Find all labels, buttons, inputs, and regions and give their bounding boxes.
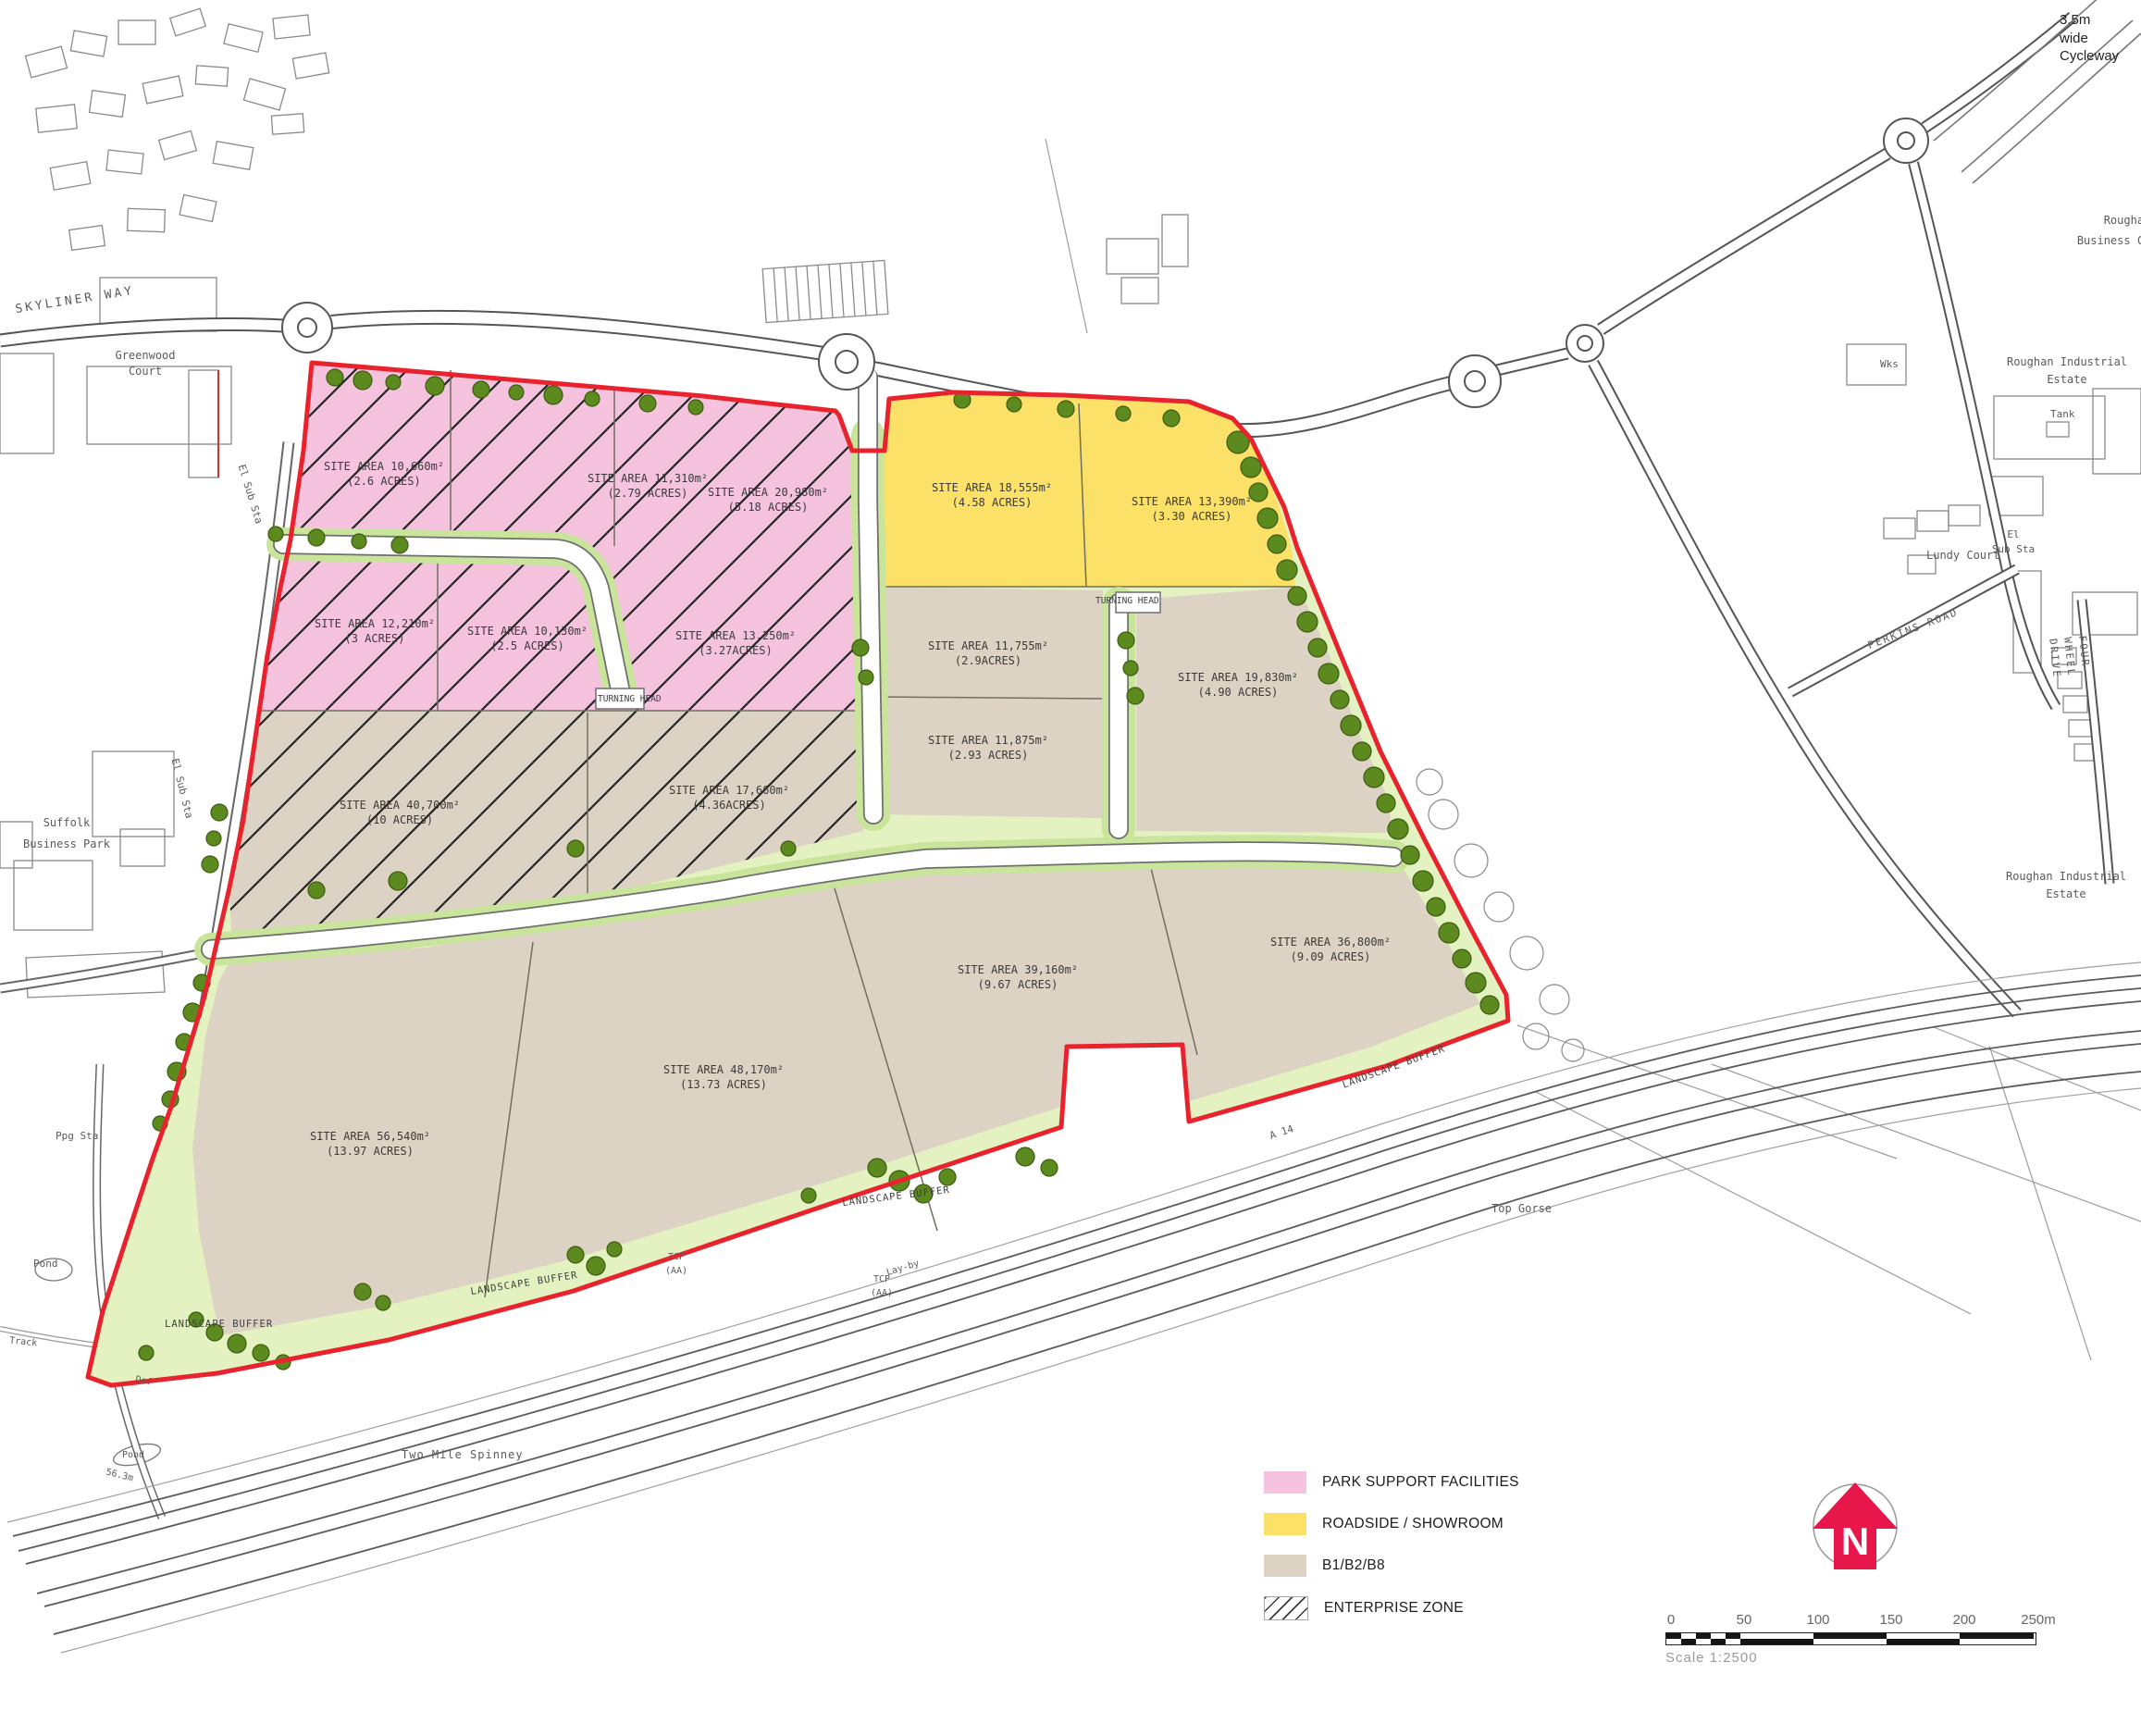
legend: PARK SUPPORT FACILITIES ROADSIDE / SHOWR… (1264, 1471, 1519, 1620)
road-label-track: Track (8, 1334, 37, 1351)
parcel-label-9: SITE AREA 11,755m²(2.9ACRES) (928, 639, 1048, 668)
legend-label: PARK SUPPORT FACILITIES (1322, 1474, 1519, 1491)
parcel-label-3: SITE AREA 20,980m²(5.18 ACRES) (708, 485, 828, 515)
place-label-pond-b: Pond (122, 1449, 144, 1463)
north-arrow: N (1813, 1482, 1898, 1569)
parcel-label-6: SITE AREA 13,250m²(3.27ACRES) (675, 628, 796, 658)
parcel-area: SITE AREA 11,310m² (588, 471, 708, 486)
parcel-area: SITE AREA 10,660m² (324, 459, 444, 474)
north-arrow-label: N (1841, 1519, 1869, 1563)
road-label-tcp-aa-a: TCP (AA) (653, 1251, 699, 1278)
legend-swatch-beige (1264, 1555, 1306, 1577)
place-label-tank: Tank (2050, 407, 2075, 422)
legend-label: ROADSIDE / SHOWROOM (1322, 1516, 1504, 1532)
place-label-greenwood-court: Greenwood Court (94, 348, 196, 380)
parcel-area: SITE AREA 17,660m² (669, 783, 789, 798)
parcel-area: SITE AREA 40,700m² (340, 798, 460, 812)
scale-tick: 0 (1667, 1612, 1675, 1628)
annotation-turning-head-b: TURNING HEAD (598, 693, 662, 706)
parcel-area: SITE AREA 20,980m² (708, 485, 828, 500)
legend-item-roadside-showroom: ROADSIDE / SHOWROOM (1264, 1513, 1519, 1535)
parcel-label-16: SITE AREA 48,170m²(13.73 ACRES) (663, 1062, 784, 1092)
annotation-cycleway: 3.5m wide Cycleway (2060, 11, 2119, 66)
legend-item-enterprise-zone: ENTERPRISE ZONE (1264, 1596, 1519, 1620)
parcel-acres: (9.09 ACRES) (1270, 949, 1391, 964)
scale-tick: 250m (2021, 1612, 2056, 1628)
parcel-acres: (10 ACRES) (340, 812, 460, 827)
parcel-acres: (4.36ACRES) (669, 798, 789, 812)
place-label-el-sub-sta-c: El Sub Sta (1976, 527, 2050, 557)
parcel-area: SITE AREA 11,875m² (928, 733, 1048, 748)
parcel-area: SITE AREA 36,800m² (1270, 935, 1391, 949)
road-label-four-wheel-drive: FOUR WHEEL DRIVE (2045, 635, 2094, 691)
scale-tick: 200 (1952, 1612, 1975, 1628)
map-canvas: N (0, 0, 2141, 1736)
parcel-acres: (9.67 ACRES) (958, 977, 1078, 992)
place-label-roughan-industrial-south: Roughan Industrial Estate (1987, 868, 2141, 903)
parcel-area: SITE AREA 56,540m² (310, 1129, 430, 1144)
parcel-label-15: SITE AREA 36,800m²(9.09 ACRES) (1270, 935, 1391, 964)
parcel-label-13: SITE AREA 17,660m²(4.36ACRES) (669, 783, 789, 812)
place-label-two-mile-spinney: Two Mile Spinney (402, 1447, 524, 1463)
parcel-area: SITE AREA 18,555m² (932, 480, 1052, 495)
parcel-acres: (2.5 ACRES) (467, 639, 588, 653)
scale-tick: 100 (1806, 1612, 1829, 1628)
annotation-landscape-buffer-a: LANDSCAPE BUFFER (165, 1318, 273, 1332)
parcel-label-11: SITE AREA 19,830m²(4.90 ACRES) (1178, 670, 1298, 700)
parcel-acres: (2.9ACRES) (928, 653, 1048, 668)
legend-swatch-hatch (1264, 1596, 1308, 1620)
parcel-label-5: SITE AREA 10,130m²(2.5 ACRES) (467, 624, 588, 653)
site-masterplan: N SKYLINER WAY Greenwood Court El Sub St… (0, 0, 2141, 1736)
parcel-acres: (2.6 ACRES) (324, 474, 444, 489)
parcel-label-4: SITE AREA 12,210m²(3 ACRES) (315, 616, 435, 646)
scale-bar-ticks: 0 50 100 150 200 250m (1665, 1612, 2047, 1631)
parcel-acres: (2.79 ACRES) (588, 486, 708, 501)
road-label-tcp-aa-b: TCP (AA) (859, 1273, 905, 1300)
parcel-acres: (3.27ACRES) (675, 643, 796, 658)
parcel-area: SITE AREA 19,830m² (1178, 670, 1298, 685)
place-label-roughan-industrial-north: Roughan Industrial Estate (1993, 353, 2141, 389)
parcel-area: SITE AREA 12,210m² (315, 616, 435, 631)
parcel-area: SITE AREA 13,390m² (1132, 494, 1252, 509)
parcel-label-7: SITE AREA 18,555m²(4.58 ACRES) (932, 480, 1052, 510)
scale-caption: Scale 1:2500 (1665, 1650, 2047, 1666)
place-label-roughan-business-centre: Roughan Business Centre (2058, 211, 2141, 251)
legend-swatch-pink (1264, 1471, 1306, 1494)
place-label-wks: Wks (1880, 357, 1899, 372)
parcel-label-2: SITE AREA 11,310m²(2.79 ACRES) (588, 471, 708, 501)
parcel-acres: (13.73 ACRES) (663, 1077, 784, 1092)
parcel-acres: (13.97 ACRES) (310, 1144, 430, 1159)
excluded-plot (1061, 1045, 1189, 1127)
parcel-area: SITE AREA 10,130m² (467, 624, 588, 639)
scale-bar-graphic (1665, 1632, 2036, 1645)
place-label-suffolk-business-park: Suffolk Business Park (7, 812, 126, 855)
place-label-top-gorse: Top Gorse (1491, 1201, 1552, 1217)
scale-tick: 150 (1879, 1612, 1902, 1628)
parcel-label-10: SITE AREA 11,875m²(2.93 ACRES) (928, 733, 1048, 763)
parcel-label-12: SITE AREA 40,700m²(10 ACRES) (340, 798, 460, 827)
annotation-turning-head-a: TURNING HEAD (1095, 595, 1159, 608)
scale-bar: 0 50 100 150 200 250m Scale 1:2500 (1665, 1612, 2047, 1666)
parcel-area: SITE AREA 11,755m² (928, 639, 1048, 653)
legend-label: B1/B2/B8 (1322, 1557, 1385, 1574)
parcel-area: SITE AREA 48,170m² (663, 1062, 784, 1077)
zone-b1b2b8-mid (873, 587, 1103, 818)
parcel-acres: (2.93 ACRES) (928, 748, 1048, 763)
parcel-area: SITE AREA 39,160m² (958, 962, 1078, 977)
parcel-acres: (3.30 ACRES) (1132, 509, 1252, 524)
legend-item-b1b2b8: B1/B2/B8 (1264, 1555, 1519, 1577)
place-label-pond-a: Pond (33, 1257, 58, 1271)
scale-tick: 50 (1737, 1612, 1752, 1628)
parcel-acres: (4.58 ACRES) (932, 495, 1052, 510)
parcel-acres: (4.90 ACRES) (1178, 685, 1298, 700)
parcel-area: SITE AREA 13,250m² (675, 628, 796, 643)
legend-swatch-yellow (1264, 1513, 1306, 1535)
roundabouts (282, 118, 1928, 407)
parcel-label-14: SITE AREA 39,160m²(9.67 ACRES) (958, 962, 1078, 992)
legend-label: ENTERPRISE ZONE (1324, 1600, 1464, 1617)
legend-item-park-support: PARK SUPPORT FACILITIES (1264, 1471, 1519, 1494)
parcel-acres: (3 ACRES) (315, 631, 435, 646)
parcel-label-17: SITE AREA 56,540m²(13.97 ACRES) (310, 1129, 430, 1159)
place-label-ppg-sta: Ppg Sta (56, 1129, 98, 1144)
parcel-acres: (5.18 ACRES) (708, 500, 828, 515)
parcel-label-8: SITE AREA 13,390m²(3.30 ACRES) (1132, 494, 1252, 524)
parcel-label-1: SITE AREA 10,660m²(2.6 ACRES) (324, 459, 444, 489)
